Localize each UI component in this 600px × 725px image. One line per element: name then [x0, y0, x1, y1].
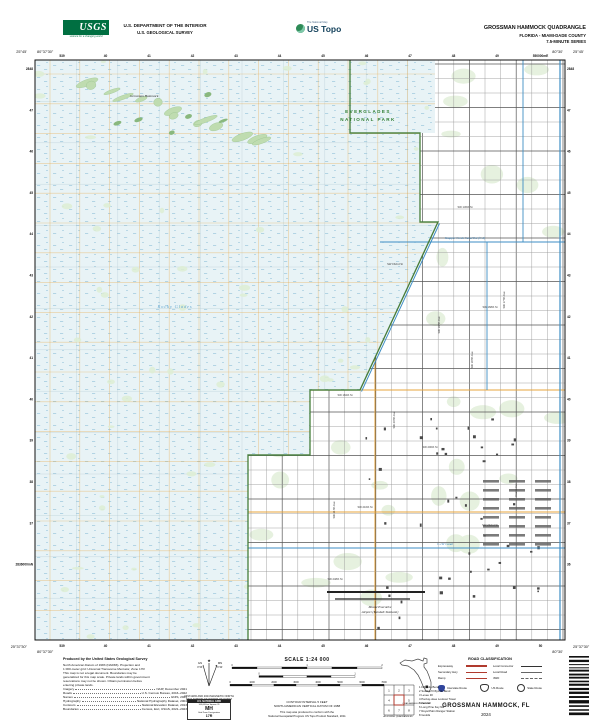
contour-interval-note: CONTOUR INTERVAL 5 FEET NORTH AMERICAN V…: [222, 700, 392, 708]
svg-text:39: 39: [29, 439, 33, 443]
svg-text:49: 49: [495, 644, 499, 648]
svg-text:36: 36: [567, 563, 571, 567]
svg-text:SW 177th Ave: SW 177th Ave: [502, 291, 506, 308]
svg-text:Grossman Hammock: Grossman Hammock: [130, 94, 159, 98]
svg-text:NATIONAL PARK: NATIONAL PARK: [340, 117, 395, 122]
svg-text:41: 41: [567, 356, 571, 360]
svg-text:41: 41: [147, 644, 151, 648]
svg-text:Airport (Kendall-Tamiami): Airport (Kendall-Tamiami): [361, 610, 400, 614]
svg-text:40: 40: [567, 397, 571, 401]
product-standard-note: This map was produced to conform with th…: [222, 711, 392, 719]
svg-text:80°37'30": 80°37'30": [37, 50, 54, 54]
svg-text:SW 216th St: SW 216th St: [357, 505, 372, 509]
svg-text:44: 44: [567, 232, 571, 236]
svg-text:47: 47: [408, 644, 412, 648]
svg-text:SW 168th St: SW 168th St: [482, 305, 497, 309]
barcode: [567, 654, 591, 718]
produced-by-line: Produced by the United States Geological…: [63, 657, 187, 662]
svg-text:4000: 4000: [315, 681, 321, 684]
svg-text:Miami Executive: Miami Executive: [368, 605, 392, 609]
sheet-year: 2024: [428, 712, 544, 717]
svg-text:539: 539: [59, 644, 65, 648]
svg-text:SW 232nd St: SW 232nd St: [482, 523, 498, 527]
svg-text:45: 45: [29, 191, 33, 195]
svg-text:3000: 3000: [293, 681, 299, 684]
svg-text:37: 37: [29, 521, 33, 525]
svg-text:★: ★: [207, 658, 211, 663]
svg-text:46: 46: [29, 150, 33, 154]
svg-text:41: 41: [147, 54, 151, 58]
svg-text:0°23': 0°23': [197, 666, 203, 669]
svg-text:47: 47: [567, 108, 571, 112]
svg-text:1000: 1000: [249, 681, 255, 684]
svg-text:2: 2: [398, 689, 400, 693]
svg-text:37: 37: [567, 521, 571, 525]
svg-text:SW 207th Ave: SW 207th Ave: [392, 411, 396, 428]
svg-text:47: 47: [29, 108, 33, 112]
route-shield-state: State Route: [517, 684, 542, 692]
svg-text:SW 197th Ave: SW 197th Ave: [437, 316, 441, 333]
svg-text:2848: 2848: [567, 67, 574, 71]
adjoining-caption: ADJOINING QUADRANGLES: [373, 716, 423, 718]
sheet-title-block: GROSSMAN HAMMOCK, FL 2024: [428, 703, 544, 717]
svg-text:45: 45: [321, 54, 325, 58]
state-route-shield-icon: [517, 684, 525, 692]
svg-text:Krome Ave: Krome Ave: [514, 483, 518, 497]
svg-text:8: 8: [408, 709, 410, 713]
svg-text:Snapper Creek Canal Ext (C-2): Snapper Creek Canal Ext (C-2): [445, 236, 485, 240]
svg-text:5000: 5000: [337, 681, 343, 684]
svg-text:48: 48: [452, 644, 456, 648]
svg-text:0: 0: [258, 673, 260, 676]
svg-text:48: 48: [452, 54, 456, 58]
road-class-title: ROAD CLASSIFICATION: [438, 657, 542, 661]
road-class-rows: ExpresswayLocal ConnectorSecondary HwyLo…: [438, 663, 542, 681]
road-class-row: Expressway: [438, 664, 487, 668]
adjoining-quad-grid: 12345678: [383, 684, 415, 716]
svg-text:0: 0: [231, 664, 233, 667]
svg-text:80°30': 80°30': [552, 650, 563, 654]
svg-text:5: 5: [408, 699, 410, 703]
svg-text:42: 42: [29, 315, 33, 319]
map-sheet: USGS science for a changing world U.S. D…: [0, 0, 600, 725]
map-canvas: EVERGLADESNATIONAL PARKGrossman HammockR…: [0, 0, 600, 725]
svg-text:1: 1: [306, 664, 308, 667]
svg-text:50: 50: [539, 644, 543, 648]
svg-text:550000mE: 550000mE: [533, 54, 549, 58]
svg-text:2848: 2848: [26, 67, 33, 71]
svg-text:EVERGLADES: EVERGLADES: [345, 109, 391, 114]
svg-text:40: 40: [104, 644, 108, 648]
svg-text:25°45': 25°45': [573, 50, 584, 54]
svg-text:42: 42: [191, 644, 195, 648]
svg-text:SW 136th St: SW 136th St: [457, 205, 472, 209]
source-line: BoundariesCensus, Esri, USGS, 2021–2023: [63, 707, 187, 711]
road-class-row: Secondary Hwy: [438, 670, 487, 674]
svg-text:C-1W Canal: C-1W Canal: [437, 542, 453, 546]
svg-text:0: 0: [229, 681, 231, 684]
credit-lines: North American Datum of 1983 (NAD83). Pr…: [63, 663, 187, 687]
svg-text:SW 187th Ave: SW 187th Ave: [470, 351, 474, 368]
data-source-lines: ImageryNAIP, December 2021RoadsU.S. Cens…: [63, 687, 187, 711]
scale-block: SCALE 1:24 000 0120101000200030004000500…: [222, 657, 392, 719]
svg-text:80°30': 80°30': [552, 50, 563, 54]
svg-text:SW 152nd St: SW 152nd St: [387, 262, 403, 266]
contour-line2: NORTH AMERICAN VERTICAL DATUM OF 1988: [222, 704, 392, 708]
svg-text:2000: 2000: [271, 681, 277, 684]
svg-text:45: 45: [321, 644, 325, 648]
svg-text:38: 38: [567, 480, 571, 484]
svg-text:44: 44: [278, 644, 282, 648]
road-class-row: 4WD: [493, 676, 542, 680]
svg-text:2: 2: [381, 664, 383, 667]
svg-text:2836000mN: 2836000mN: [15, 563, 33, 567]
svg-text:25°45': 25°45': [16, 50, 27, 54]
road-class-row: Local Road: [493, 670, 542, 674]
svg-text:GN: GN: [198, 661, 202, 665]
svg-text:SW 248th St: SW 248th St: [327, 577, 342, 581]
standard-line2: National Geospatial Program US Topo Prod…: [222, 715, 392, 719]
svg-text:539: 539: [59, 54, 65, 58]
svg-text:46: 46: [365, 644, 369, 648]
svg-text:40: 40: [29, 397, 33, 401]
svg-text:80°37'30": 80°37'30": [37, 650, 54, 654]
road-class-row: Ramp: [438, 676, 487, 680]
svg-text:Rocky Glades: Rocky Glades: [157, 304, 193, 309]
road-class-row: Local Connector: [493, 664, 542, 668]
svg-text:42: 42: [567, 315, 571, 319]
svg-text:SW 184th St: SW 184th St: [337, 393, 352, 397]
svg-text:43: 43: [234, 54, 238, 58]
svg-text:45: 45: [567, 191, 571, 195]
svg-text:43: 43: [29, 274, 33, 278]
svg-text:6000: 6000: [359, 681, 365, 684]
svg-text:44: 44: [29, 232, 33, 236]
svg-text:1: 1: [354, 673, 356, 676]
svg-text:47: 47: [408, 54, 412, 58]
svg-text:44: 44: [278, 54, 282, 58]
svg-text:40: 40: [104, 54, 108, 58]
scale-bars: 0120101000200030004000500060007000: [222, 663, 392, 693]
svg-text:SW 217th Ave: SW 217th Ave: [332, 501, 336, 518]
svg-text:SW 200th St: SW 200th St: [422, 445, 437, 449]
svg-text:49: 49: [495, 54, 499, 58]
svg-text:4: 4: [388, 699, 390, 703]
svg-text:7: 7: [398, 709, 400, 713]
svg-text:43: 43: [234, 644, 238, 648]
svg-text:46: 46: [365, 54, 369, 58]
svg-text:1: 1: [388, 689, 390, 693]
svg-text:39: 39: [567, 439, 571, 443]
production-credits: Produced by the United States Geological…: [63, 657, 187, 711]
svg-text:3: 3: [408, 689, 410, 693]
svg-text:25°37'30": 25°37'30": [573, 645, 590, 649]
svg-text:41: 41: [29, 356, 33, 360]
sheet-name: GROSSMAN HAMMOCK, FL: [428, 703, 544, 709]
svg-text:43: 43: [567, 274, 571, 278]
svg-text:46: 46: [567, 150, 571, 154]
svg-text:25°37'30": 25°37'30": [11, 645, 28, 649]
svg-text:6: 6: [388, 709, 390, 713]
svg-text:38: 38: [29, 480, 33, 484]
svg-text:42: 42: [191, 54, 195, 58]
